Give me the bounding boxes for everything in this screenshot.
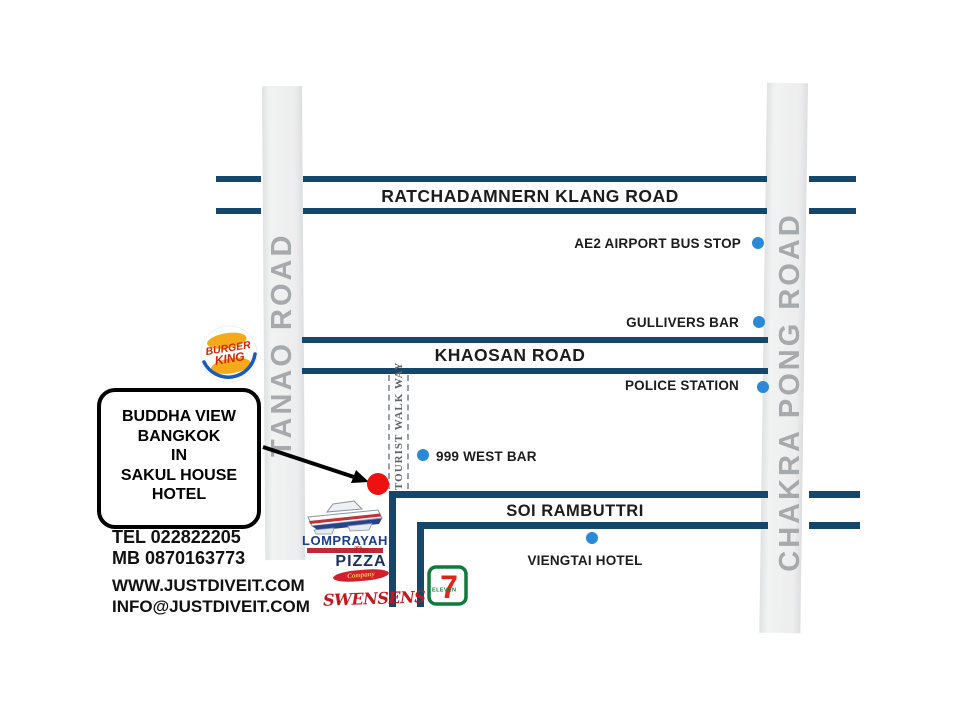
ratchadamnern-road-label: RATCHADAMNERN KLANG ROAD xyxy=(350,186,710,207)
ratchadamnern-line-segment xyxy=(216,208,261,214)
khaosan-road-label: KHAOSAN ROAD xyxy=(430,345,590,366)
999-west-bar-dot xyxy=(417,449,429,461)
soi-rambuttri-line-segment xyxy=(809,522,860,529)
contact-email: INFO@JUSTDIVEIT.COM xyxy=(112,597,310,617)
tourist-walkway-dash xyxy=(407,375,409,489)
tourist-walkway-label: TOURIST WALK WAY xyxy=(392,370,406,490)
ratchadamnern-line-segment xyxy=(809,208,856,214)
tanao-road-label: TANAO ROAD xyxy=(262,237,302,457)
soi-rambuttri-line-segment xyxy=(809,491,860,498)
gullivers-bar-label: GULLIVERS BAR xyxy=(626,315,739,330)
ratchadamnern-line-segment xyxy=(216,176,261,182)
khaosan-line-segment xyxy=(302,368,768,374)
pizza-company-logo: The PIZZA Company xyxy=(326,546,396,581)
destination-line: BUDDHA VIEW xyxy=(101,407,257,427)
destination-line: BANGKOK xyxy=(101,427,257,447)
999-west-bar-label: 999 WEST BAR xyxy=(436,449,537,464)
pizza-text: PIZZA xyxy=(326,554,396,569)
viengtai-hotel-label: VIENGTAI HOTEL xyxy=(505,553,665,568)
ratchadamnern-line-segment xyxy=(303,208,767,214)
khaosan-line-segment xyxy=(302,337,768,343)
soi-rambuttri-label: SOI RAMBUTTRI xyxy=(495,502,655,521)
viengtai-hotel-dot xyxy=(586,532,598,544)
gullivers-bar-dot xyxy=(753,316,765,328)
ae2-bus-stop-dot xyxy=(752,237,764,249)
seven-eleven-logo: 7 ELEVEN xyxy=(427,565,468,606)
contact-tel: TEL 022822205 xyxy=(112,527,241,548)
destination-arrow xyxy=(250,437,385,495)
destination-line: IN xyxy=(101,446,257,466)
ae2-bus-stop-label: AE2 AIRPORT BUS STOP xyxy=(574,236,741,251)
burger-king-logo: BURGER KING xyxy=(199,325,259,383)
arrow-line xyxy=(263,447,357,478)
soi-rambuttri-line-segment xyxy=(389,491,768,498)
destination-line: SAKUL HOUSE xyxy=(101,466,257,486)
ratchadamnern-line-segment xyxy=(809,176,856,182)
eleven-text: ELEVEN xyxy=(432,588,456,594)
soi-rambuttri-line-segment xyxy=(417,522,768,529)
tourist-walkway-dash xyxy=(388,375,390,489)
map-canvas: TANAO ROAD CHAKRA PONG ROAD RATCHADAMNER… xyxy=(0,0,960,720)
destination-box: BUDDHA VIEW BANGKOK IN SAKUL HOUSE HOTEL xyxy=(97,388,261,529)
contact-mobile: MB 0870163773 xyxy=(112,548,245,569)
police-station-dot xyxy=(757,381,769,393)
police-station-label: POLICE STATION xyxy=(625,378,739,393)
catamaran-boat-icon xyxy=(308,501,382,534)
contact-website: WWW.JUSTDIVEIT.COM xyxy=(112,576,305,596)
ratchadamnern-line-segment xyxy=(303,176,767,182)
swensens-logo: SWENSENS xyxy=(323,587,426,610)
chakra-pong-road-label: CHAKRA PONG ROAD xyxy=(770,202,810,582)
destination-dot xyxy=(367,473,389,495)
destination-line: HOTEL xyxy=(101,485,257,505)
